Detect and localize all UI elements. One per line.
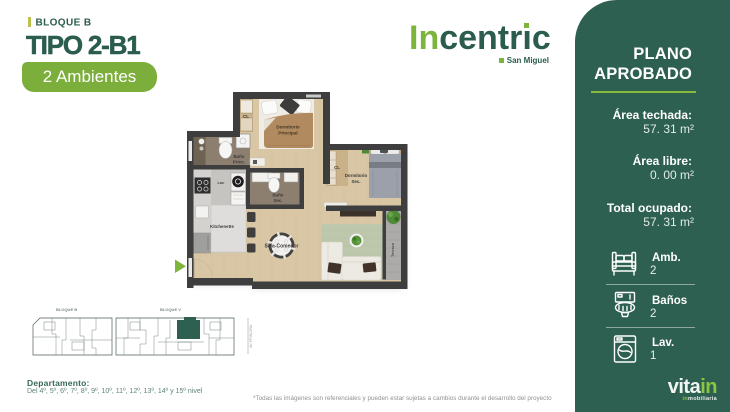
svg-text:Dormitorio: Dormitorio <box>345 173 368 178</box>
svg-text:Kitchenette: Kitchenette <box>210 224 234 229</box>
svg-text:AV. PRINCIPAL: AV. PRINCIPAL <box>249 324 253 348</box>
svg-text:Princ.: Princ. <box>233 160 245 165</box>
svg-text:CL: CL <box>334 165 340 170</box>
svg-text:Baño: Baño <box>234 154 245 159</box>
svg-text:CL: CL <box>243 114 249 119</box>
svg-text:BLOQUE V: BLOQUE V <box>160 307 181 312</box>
svg-text:Principal: Principal <box>278 131 297 136</box>
svg-text:Sec.: Sec. <box>273 198 282 203</box>
svg-text:Sec.: Sec. <box>351 179 360 184</box>
svg-text:Baño: Baño <box>273 193 284 198</box>
svg-text:Terraza: Terraza <box>390 242 395 257</box>
svg-text:BLOQUE B: BLOQUE B <box>56 307 77 312</box>
svg-text:Lav.: Lav. <box>218 181 225 185</box>
svg-text:Sala-Comedor: Sala-Comedor <box>265 244 299 250</box>
svg-text:Dormitorio: Dormitorio <box>276 125 300 130</box>
